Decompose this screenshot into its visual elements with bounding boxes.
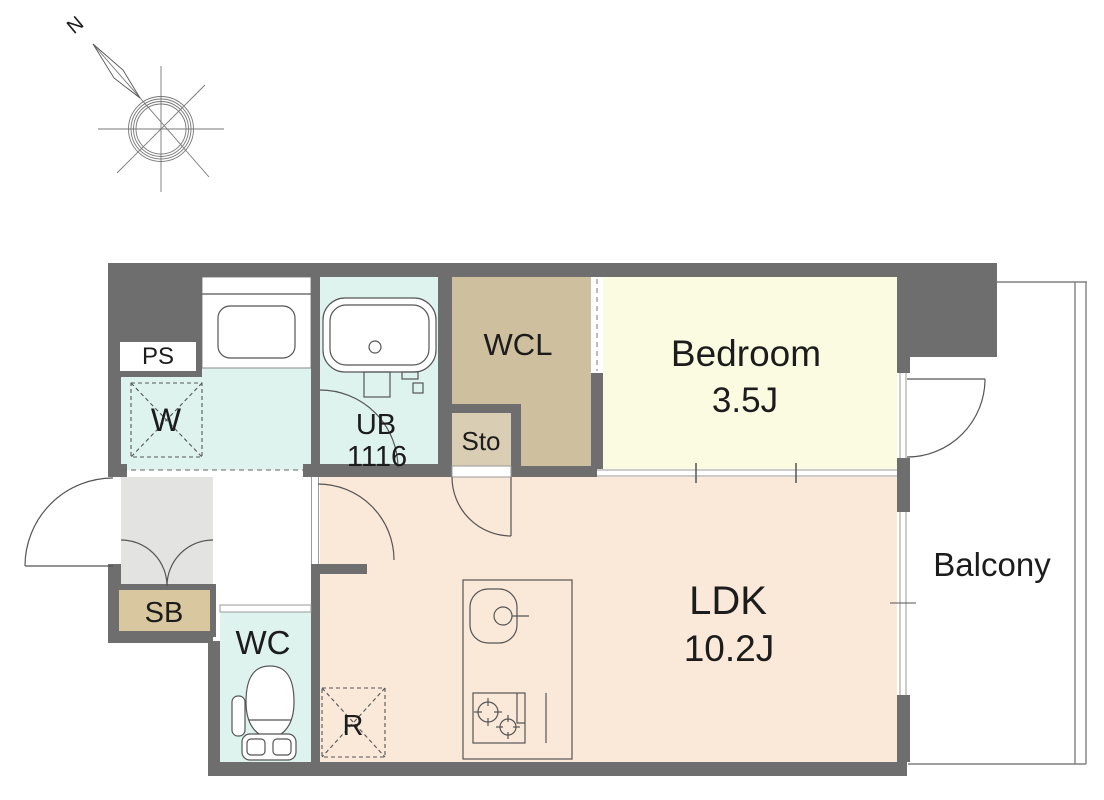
entrance-door-swing	[25, 478, 113, 566]
wall-segment	[897, 357, 910, 373]
label-bedroom: Bedroom	[671, 333, 821, 374]
balcony-door-swing	[907, 379, 985, 457]
washstand-sink	[218, 306, 295, 358]
label-refrigerator: R	[343, 710, 364, 742]
label-balcony: Balcony	[933, 546, 1051, 583]
wall-segment	[311, 564, 367, 574]
ldk-floor	[320, 477, 897, 762]
label-washer: W	[151, 402, 182, 438]
toilet-tank	[242, 734, 296, 760]
wall-segment	[311, 277, 320, 470]
label-wcl: WCL	[484, 327, 553, 362]
bathtub	[323, 298, 436, 372]
wall-segment	[511, 404, 521, 477]
wall-segment	[897, 263, 997, 357]
wall-segment	[897, 458, 910, 512]
entrance-floor	[121, 477, 213, 588]
label-ldk: LDK	[689, 579, 767, 623]
label-wc: WC	[236, 624, 291, 661]
label-ub-size: 1116	[347, 441, 407, 473]
storage-door-opening	[452, 466, 511, 477]
wc-door	[220, 605, 311, 612]
toilet-bowl	[246, 666, 294, 737]
label-ldk-size: 10.2J	[684, 628, 775, 669]
wall-segment	[208, 641, 220, 776]
wall-segment	[108, 263, 202, 338]
wall-segment	[897, 695, 910, 762]
label-ps: PS	[142, 343, 174, 370]
wall-segment	[446, 404, 521, 413]
wall-segment	[438, 263, 452, 470]
label-sto: Sto	[461, 426, 500, 456]
wall-segment	[521, 466, 603, 477]
kitchen-faucet	[494, 607, 512, 625]
compass-north-label: N	[63, 12, 88, 38]
toilet-armrest	[232, 696, 245, 736]
wall-segment	[591, 373, 603, 477]
label-bedroom-size: 3.5J	[712, 381, 778, 420]
wall-segment	[108, 263, 997, 277]
balcony-door-opening	[897, 373, 910, 458]
label-sb: SB	[145, 597, 184, 629]
wall-segment	[208, 762, 907, 776]
wall-segment	[311, 564, 320, 762]
label-ub: UB	[356, 409, 396, 441]
floor-plan-drawing: N PS W UB 1116 WCL Sto Bedroom 3.5J SB W…	[0, 0, 1104, 800]
floor-plan-canvas: N PS W UB 1116 WCL Sto Bedroom 3.5J SB W…	[0, 0, 1104, 800]
compass-rose: N	[63, 12, 224, 192]
